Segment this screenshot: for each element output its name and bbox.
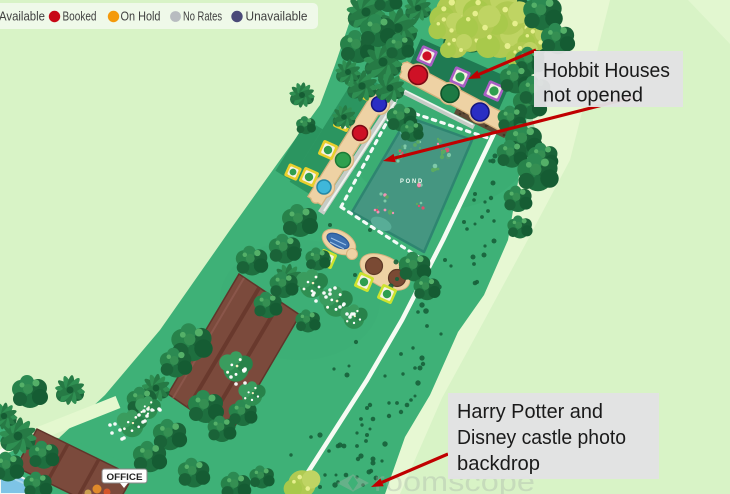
svg-text:On Hold: On Hold (121, 10, 161, 24)
svg-text:OFFICE: OFFICE (107, 472, 143, 482)
svg-text:backdrop: backdrop (457, 452, 540, 475)
svg-text:Harry Potter and: Harry Potter and (457, 400, 603, 423)
svg-text:not opened: not opened (543, 84, 643, 107)
svg-text:Unavailable: Unavailable (246, 10, 308, 24)
svg-text:POND: POND (400, 178, 424, 185)
svg-text:Available: Available (0, 10, 45, 24)
svg-text:Booked: Booked (63, 10, 97, 24)
svg-text:Disney castle photo: Disney castle photo (457, 426, 626, 449)
svg-text:No Rates: No Rates (183, 10, 222, 24)
svg-text:Hobbit Houses: Hobbit Houses (543, 59, 670, 82)
